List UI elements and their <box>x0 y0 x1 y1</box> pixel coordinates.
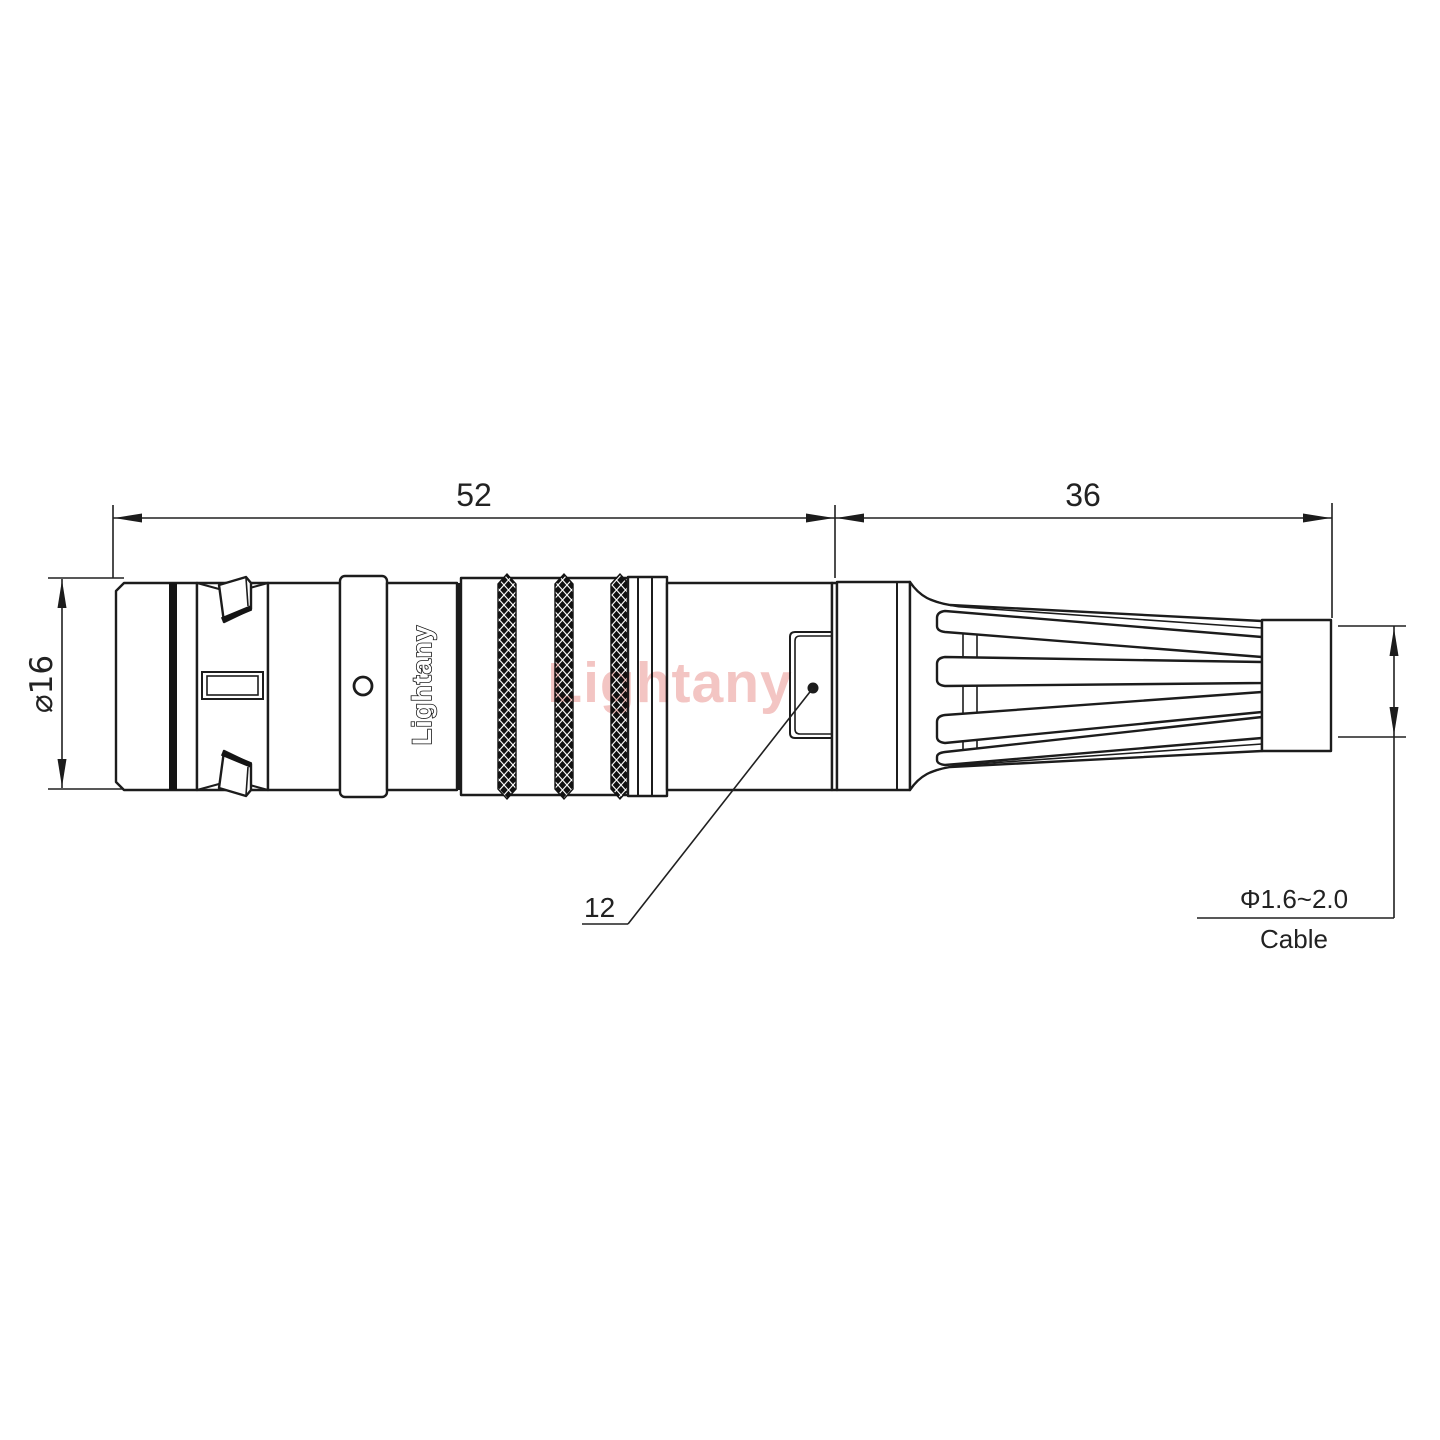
arrowhead <box>1390 628 1399 656</box>
arrowhead <box>806 514 834 523</box>
drawing-canvas: Lightany <box>0 0 1440 1440</box>
dim-12-label: 12 <box>584 892 615 923</box>
mid-section <box>268 583 340 790</box>
dim-dia16-label: ⌀16 <box>24 655 60 713</box>
knurl-band <box>498 574 516 799</box>
arrowhead <box>58 580 67 608</box>
cable-end-cap <box>1262 620 1331 751</box>
engraved-brand-text: Lightany <box>407 625 437 746</box>
front-nose <box>116 583 197 790</box>
watermark-text: Lightany <box>540 650 800 716</box>
cable-word-label: Cable <box>1260 924 1328 954</box>
arrowhead <box>58 759 67 787</box>
boot-fin <box>937 657 1262 686</box>
arrowhead <box>114 514 142 523</box>
connector-technical-drawing: Lightany <box>0 0 1440 1440</box>
arrowhead <box>1390 707 1399 735</box>
front-groove-band <box>169 583 177 790</box>
arrowhead <box>1303 514 1331 523</box>
boot-collar <box>837 582 910 790</box>
arrowhead <box>836 514 864 523</box>
dim-36-label: 36 <box>1065 477 1101 513</box>
cable-range-label: Φ1.6~2.0 <box>1240 884 1348 914</box>
flange-hole <box>354 677 372 695</box>
dim-52-label: 52 <box>456 477 492 513</box>
